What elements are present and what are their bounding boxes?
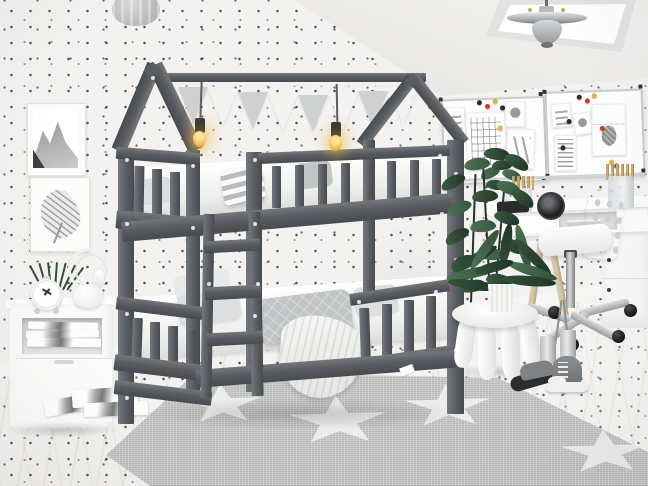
upper-front-slat bbox=[341, 163, 350, 205]
plant-leaf bbox=[472, 189, 499, 203]
lower-front-slat bbox=[426, 296, 436, 352]
screw-cap bbox=[191, 226, 195, 230]
plant-leaf bbox=[445, 197, 474, 219]
plant-leaf bbox=[439, 171, 468, 194]
screw-cap bbox=[253, 158, 257, 162]
plant-leaf bbox=[463, 156, 490, 172]
upper-front-slat bbox=[295, 165, 304, 207]
screw-cap bbox=[256, 282, 260, 286]
upper-front-slat bbox=[364, 162, 373, 204]
sneaker-sole bbox=[546, 382, 588, 392]
plant-leaf bbox=[509, 185, 537, 210]
screw-cap bbox=[125, 158, 129, 162]
scene: Photograph of a kids attic bedroom with … bbox=[0, 0, 648, 486]
bunting-flag bbox=[268, 94, 298, 131]
screw-cap bbox=[125, 396, 129, 400]
screw-cap bbox=[253, 314, 257, 318]
sneaker-upright bbox=[548, 352, 588, 396]
lower-front-slat bbox=[404, 300, 414, 356]
upper-front-slat bbox=[318, 164, 327, 206]
upper-front-slat bbox=[272, 166, 281, 208]
screw-cap bbox=[357, 300, 361, 304]
lower-front-slat bbox=[382, 304, 392, 358]
stool-leg bbox=[501, 322, 521, 381]
screw-cap bbox=[207, 282, 211, 286]
upper-front-slat bbox=[387, 161, 396, 203]
upper-end-slat bbox=[134, 166, 145, 218]
lower-front-slat bbox=[359, 308, 371, 360]
screw-cap bbox=[125, 312, 129, 316]
screw-cap bbox=[253, 222, 257, 226]
screw-cap bbox=[151, 76, 155, 80]
screw-cap bbox=[410, 96, 414, 100]
bunting-flag bbox=[238, 92, 268, 129]
screw-cap bbox=[125, 222, 129, 226]
plant-leaf bbox=[503, 150, 532, 173]
fern-pot bbox=[486, 284, 516, 312]
stool-leg bbox=[478, 322, 496, 380]
screw-cap bbox=[191, 164, 195, 168]
